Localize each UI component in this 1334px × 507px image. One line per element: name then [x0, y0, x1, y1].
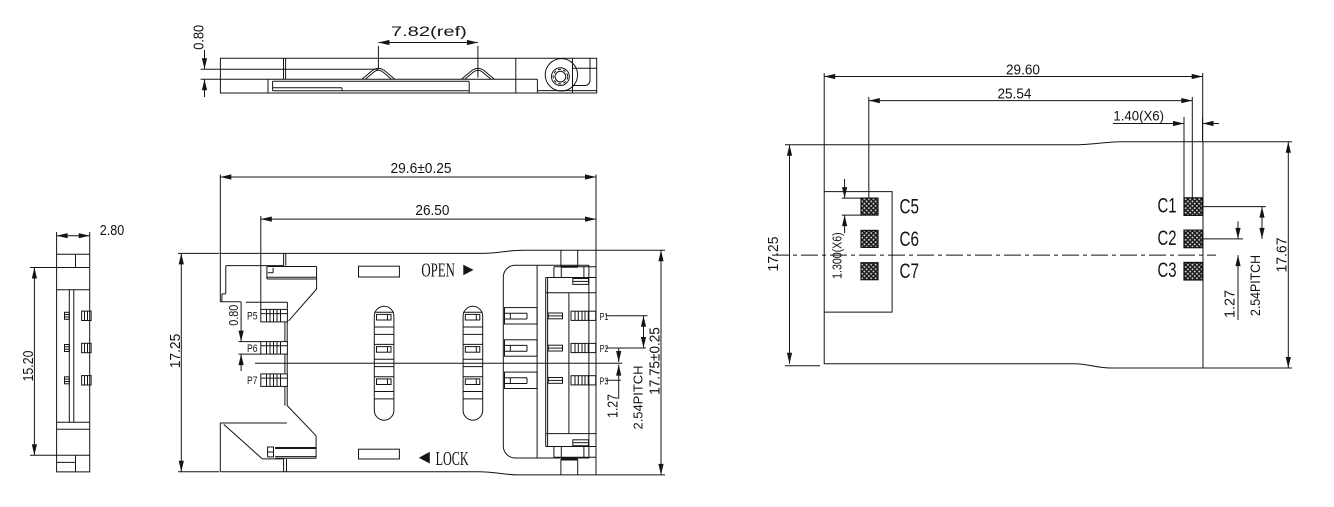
svg-text:29.6±0.25: 29.6±0.25 [391, 161, 452, 177]
svg-text:2.80: 2.80 [100, 223, 125, 239]
svg-text:P7: P7 [247, 375, 258, 387]
svg-text:7.82(ref): 7.82(ref) [391, 24, 467, 39]
svg-text:C3: C3 [1158, 259, 1177, 282]
svg-text:1.300(X6): 1.300(X6) [830, 232, 845, 279]
svg-text:17.67: 17.67 [1275, 238, 1291, 273]
svg-text:26.50: 26.50 [415, 203, 449, 219]
svg-text:C1: C1 [1158, 195, 1177, 218]
svg-text:25.54: 25.54 [998, 86, 1032, 102]
svg-text:P2: P2 [600, 343, 609, 355]
svg-text:C2: C2 [1158, 227, 1177, 250]
svg-text:2.54PITCH: 2.54PITCH [1248, 255, 1263, 316]
svg-text:17.75±0.25: 17.75±0.25 [648, 327, 664, 395]
svg-text:1.27: 1.27 [1223, 290, 1239, 318]
svg-text:29.60: 29.60 [1006, 63, 1040, 79]
svg-text:1.40(X6): 1.40(X6) [1113, 109, 1164, 124]
svg-text:15.20: 15.20 [21, 351, 37, 382]
svg-text:17.25: 17.25 [766, 237, 782, 272]
svg-text:OPEN: OPEN [421, 259, 455, 281]
svg-text:C7: C7 [900, 260, 920, 283]
svg-text:P1: P1 [600, 311, 609, 323]
svg-text:1.27: 1.27 [605, 394, 621, 418]
svg-text:C5: C5 [900, 196, 920, 219]
svg-text:P3: P3 [600, 376, 609, 388]
svg-text:17.25: 17.25 [168, 334, 184, 369]
svg-text:P6: P6 [247, 343, 258, 355]
svg-text:P5: P5 [247, 311, 258, 323]
svg-text:0.80: 0.80 [226, 305, 241, 326]
svg-text:LOCK: LOCK [436, 448, 469, 470]
svg-text:2.54PITCH: 2.54PITCH [630, 366, 645, 430]
svg-text:0.80: 0.80 [192, 25, 208, 50]
svg-text:C6: C6 [900, 228, 920, 251]
